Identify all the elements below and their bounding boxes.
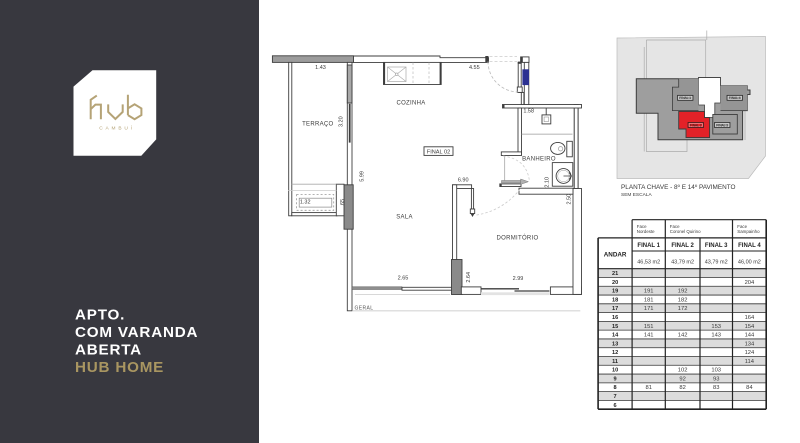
svg-text:15: 15	[612, 324, 618, 330]
svg-text:Coronel Quirino: Coronel Quirino	[670, 229, 701, 234]
svg-text:103: 103	[711, 368, 721, 374]
svg-text:142: 142	[678, 333, 688, 339]
svg-text:8: 8	[614, 385, 617, 391]
svg-text:43,79 m2: 43,79 m2	[705, 259, 728, 265]
svg-text:16: 16	[612, 315, 618, 321]
svg-text:1.58: 1.58	[523, 109, 534, 115]
svg-text:GERAL: GERAL	[355, 305, 374, 311]
svg-text:FINAL 3: FINAL 3	[716, 123, 728, 127]
svg-text:172: 172	[678, 306, 688, 312]
svg-text:134: 134	[745, 341, 755, 347]
svg-text:92: 92	[679, 376, 685, 382]
svg-text:FINAL 4: FINAL 4	[729, 96, 741, 100]
svg-text:2.99: 2.99	[513, 276, 524, 282]
svg-text:COZINHA: COZINHA	[396, 100, 425, 106]
svg-text:CAMBUÍ: CAMBUÍ	[99, 125, 134, 132]
svg-text:FINAL 1: FINAL 1	[679, 96, 691, 100]
svg-text:18: 18	[612, 297, 618, 303]
svg-text:1.43: 1.43	[315, 65, 326, 71]
svg-text:1.32: 1.32	[300, 200, 311, 206]
svg-text:84: 84	[746, 385, 753, 391]
svg-text:141: 141	[644, 333, 654, 339]
svg-text:APTO.: APTO.	[75, 307, 125, 324]
svg-text:HUB HOME: HUB HOME	[75, 359, 164, 376]
svg-text:82: 82	[679, 385, 685, 391]
svg-text:182: 182	[678, 297, 688, 303]
svg-text:FINAL 3: FINAL 3	[705, 243, 728, 249]
svg-text:FINAL 1: FINAL 1	[637, 243, 660, 249]
svg-text:FINAL 2: FINAL 2	[671, 243, 694, 249]
svg-text:2.10: 2.10	[544, 177, 550, 188]
svg-text:204: 204	[745, 280, 755, 286]
svg-text:143: 143	[711, 333, 721, 339]
svg-text:DORMITÓRIO: DORMITÓRIO	[497, 234, 539, 241]
svg-text:10: 10	[612, 368, 618, 374]
svg-text:81: 81	[645, 385, 651, 391]
svg-text:ABERTA: ABERTA	[75, 342, 142, 359]
svg-text:20: 20	[612, 280, 618, 286]
svg-text:3.20: 3.20	[339, 116, 345, 127]
svg-text:181: 181	[644, 297, 654, 303]
svg-text:102: 102	[678, 368, 688, 374]
svg-text:46,00 m2: 46,00 m2	[738, 259, 761, 265]
svg-text:9: 9	[614, 376, 617, 382]
svg-text:SALA: SALA	[396, 214, 413, 220]
svg-text:43,79 m2: 43,79 m2	[671, 259, 694, 265]
svg-text:6.90: 6.90	[458, 177, 469, 183]
svg-text:ANDAR: ANDAR	[604, 252, 627, 259]
svg-text:2.64: 2.64	[466, 272, 472, 283]
svg-text:83: 83	[713, 385, 719, 391]
svg-text:154: 154	[745, 324, 755, 330]
svg-text:TERRAÇO: TERRAÇO	[302, 121, 333, 127]
svg-text:7: 7	[614, 394, 617, 400]
svg-text:Face: Face	[637, 224, 647, 229]
svg-text:Sampainho: Sampainho	[737, 229, 760, 234]
svg-text:COM VARANDA: COM VARANDA	[75, 324, 198, 341]
svg-text:14: 14	[612, 333, 619, 339]
svg-text:151: 151	[644, 324, 654, 330]
svg-text:13: 13	[612, 341, 618, 347]
svg-text:153: 153	[711, 324, 721, 330]
svg-text:17: 17	[612, 306, 618, 312]
svg-text:PLANTA CHAVE - 8º E 14º PAVIME: PLANTA CHAVE - 8º E 14º PAVIMENTO	[621, 184, 736, 191]
svg-text:Nordeste: Nordeste	[637, 229, 655, 234]
svg-text:5.99: 5.99	[359, 171, 365, 182]
svg-text:11: 11	[612, 359, 618, 365]
svg-text:114: 114	[745, 359, 755, 365]
svg-text:2.65: 2.65	[398, 276, 409, 282]
svg-text:BANHEIRO: BANHEIRO	[522, 157, 556, 163]
svg-text:FINAL 02: FINAL 02	[427, 149, 450, 155]
svg-text:.65: .65	[340, 199, 346, 207]
svg-text:46,53 m2: 46,53 m2	[637, 259, 660, 265]
svg-text:19: 19	[612, 289, 618, 295]
svg-text:144: 144	[745, 333, 755, 339]
svg-text:FINAL 2: FINAL 2	[690, 123, 702, 127]
svg-text:171: 171	[644, 306, 654, 312]
svg-text:164: 164	[745, 315, 755, 321]
svg-text:12: 12	[612, 350, 618, 356]
svg-text:93: 93	[713, 376, 719, 382]
svg-text:21: 21	[612, 271, 618, 277]
svg-text:6: 6	[614, 403, 617, 409]
svg-text:191: 191	[644, 289, 654, 295]
svg-text:124: 124	[745, 350, 755, 356]
svg-text:Face: Face	[737, 224, 747, 229]
svg-text:4.55: 4.55	[469, 65, 480, 71]
svg-text:SEM ESCALA: SEM ESCALA	[621, 192, 652, 198]
svg-text:2.50: 2.50	[567, 194, 573, 205]
svg-text:192: 192	[678, 289, 688, 295]
svg-text:FINAL 4: FINAL 4	[738, 243, 761, 249]
svg-text:Face: Face	[670, 224, 680, 229]
